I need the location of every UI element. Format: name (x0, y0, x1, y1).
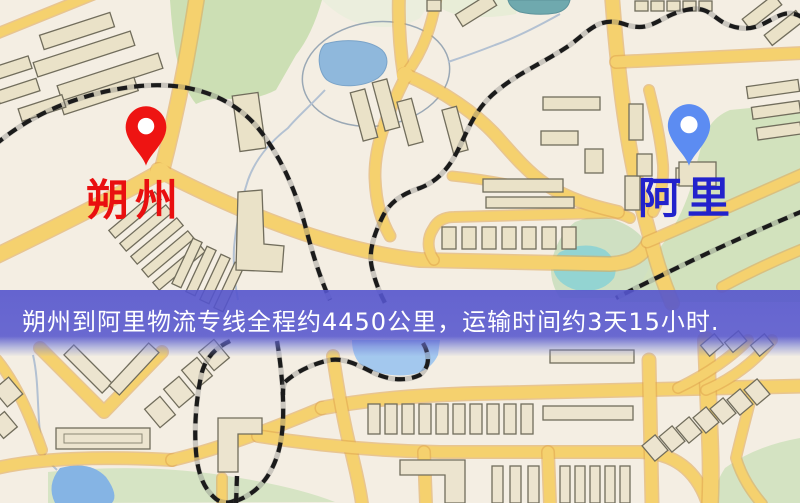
map-pin-blue (666, 103, 712, 167)
map-pin-red (124, 104, 168, 168)
map-base (0, 0, 800, 503)
map-canvas: 朔州到阿里物流专线全程约4450公里，运输时间约3天15小时. 朔州 阿里 (0, 0, 800, 503)
destination-label: 阿里 (638, 178, 736, 221)
origin-label: 朔州 (86, 180, 184, 223)
destination-pin-icon (666, 103, 712, 171)
route-info-text: 朔州到阿里物流专线全程约4450公里，运输时间约3天15小时. (22, 308, 720, 336)
origin-pin-icon (124, 104, 168, 172)
route-info-banner: 朔州到阿里物流专线全程约4450公里，运输时间约3天15小时. (0, 290, 800, 356)
